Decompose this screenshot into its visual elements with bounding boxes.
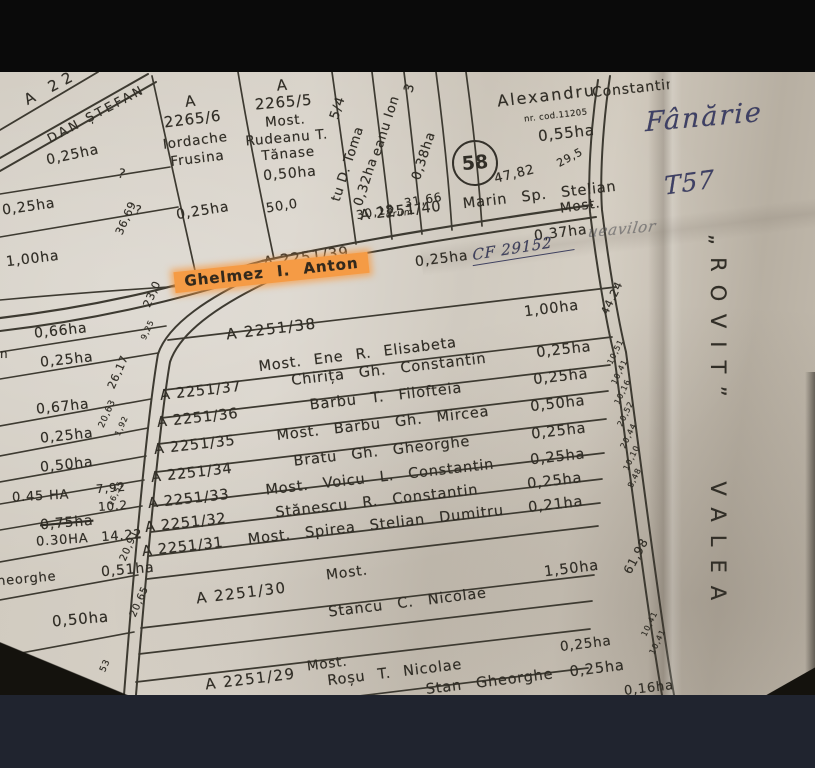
screenshot: A 22 DAN ȘTEFAN ? ? 0,25ha 0,25ha A 2265… [0, 0, 815, 768]
parcel-2265-5: A 2265/5 Most. Rudeanu T. Tănase 0,50ha [236, 74, 337, 184]
top-letterbox-bar [0, 0, 815, 72]
partial-letter: n [0, 348, 8, 360]
photo-edge-shadow [805, 372, 815, 695]
paper-fold-shadow [648, 72, 682, 695]
bottom-watermark-bar: Lajumate.ro [0, 695, 815, 768]
cadastral-map-photo: A 22 DAN ȘTEFAN ? ? 0,25ha 0,25ha A 2265… [0, 72, 815, 695]
valley-valea: VALEA [706, 481, 730, 613]
handwritten-t57: T57 [664, 166, 715, 198]
valley-name-vertical: „ROVIT” VALEA [707, 234, 728, 613]
area-value: 0.45 HA [12, 489, 70, 505]
valley-rovit: „ROVIT” [706, 234, 730, 410]
photo-corner-shadow [0, 637, 140, 695]
parcel-2265-6: A 2265/6 Iordache Frusina [144, 89, 244, 172]
